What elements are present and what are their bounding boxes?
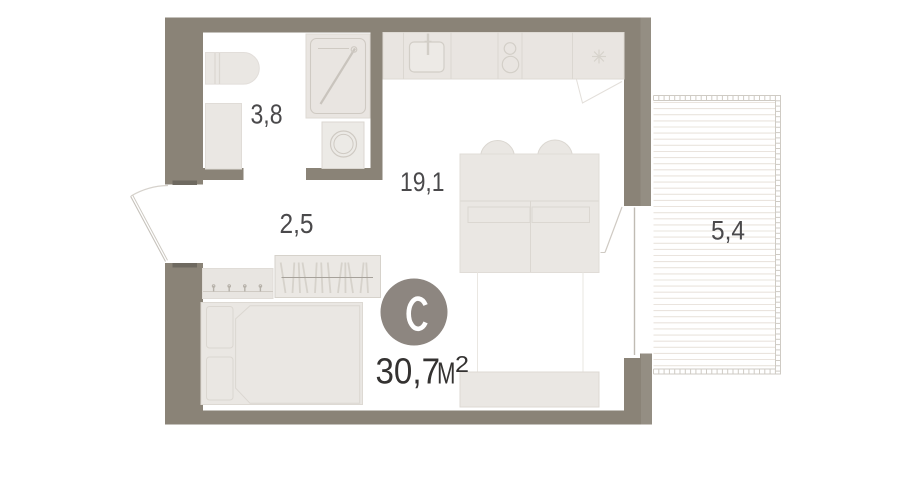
svg-text:2: 2 bbox=[455, 351, 469, 377]
svg-text:М: М bbox=[437, 357, 456, 391]
svg-text:5,4: 5,4 bbox=[711, 216, 745, 246]
svg-text:30,7: 30,7 bbox=[376, 351, 441, 392]
svg-text:19,1: 19,1 bbox=[400, 167, 445, 197]
svg-text:2,5: 2,5 bbox=[280, 208, 314, 239]
svg-text:3,8: 3,8 bbox=[251, 98, 283, 129]
